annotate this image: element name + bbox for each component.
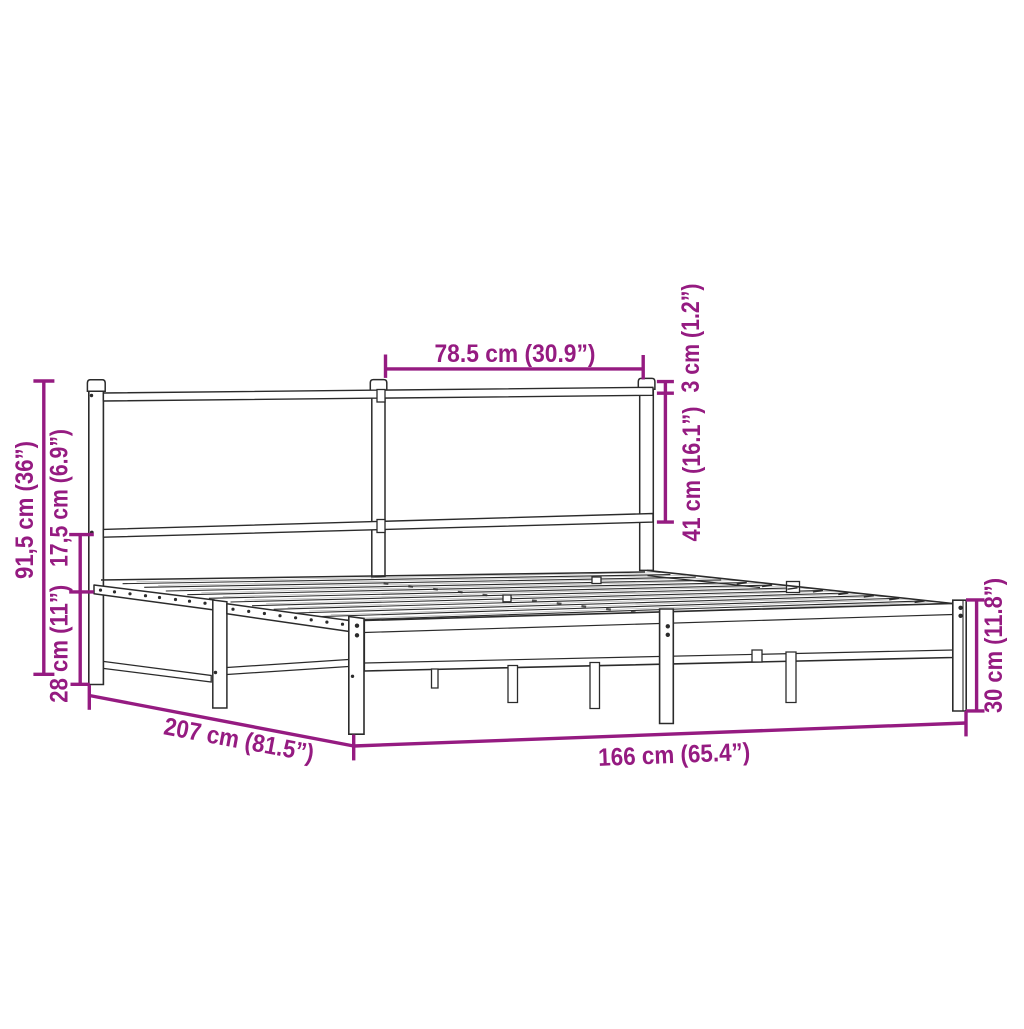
svg-text:78.5 cm (30.9”): 78.5 cm (30.9”)	[435, 340, 596, 368]
svg-text:30 cm (11.8”): 30 cm (11.8”)	[980, 578, 1008, 713]
svg-text:91,5 cm (36”): 91,5 cm (36”)	[11, 441, 39, 579]
svg-text:3 cm (1.2”): 3 cm (1.2”)	[677, 284, 705, 393]
svg-text:41 cm (16.1”): 41 cm (16.1”)	[678, 407, 706, 542]
svg-text:166 cm (65.4”): 166 cm (65.4”)	[598, 738, 751, 772]
svg-text:17,5 cm (6.9”): 17,5 cm (6.9”)	[46, 429, 74, 567]
svg-text:28 cm (11”): 28 cm (11”)	[46, 585, 74, 703]
